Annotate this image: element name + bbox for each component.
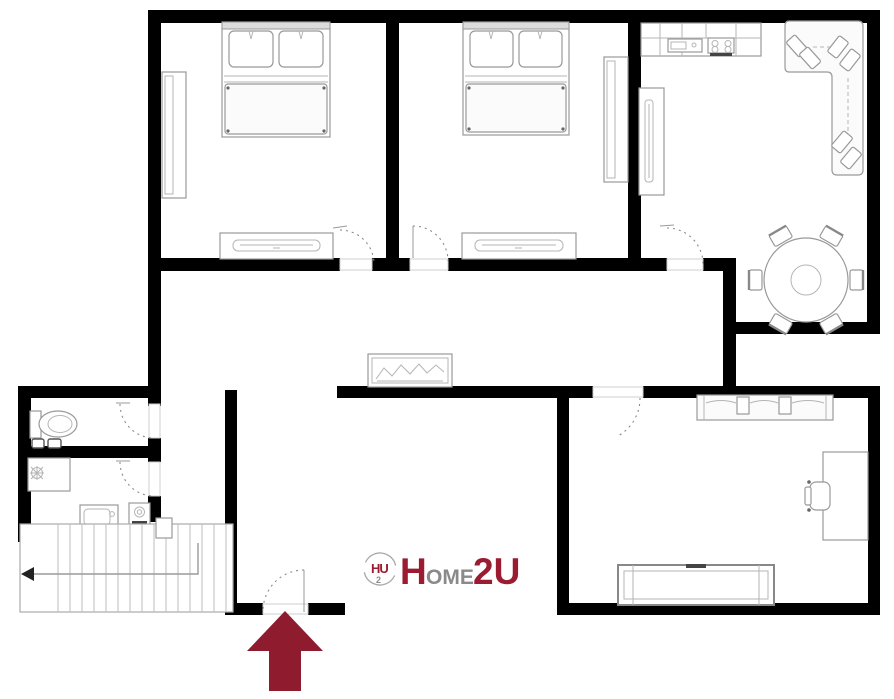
wall-bedroom-divider	[386, 23, 399, 271]
wall-dining-bottom	[723, 322, 880, 334]
logo-word-h: H	[400, 551, 427, 592]
logo-icon-sub: 2	[376, 575, 381, 585]
wall-right-upper	[867, 10, 880, 334]
double-bed	[463, 22, 569, 135]
wall-bath-top	[18, 386, 161, 398]
bath-mat	[32, 439, 44, 448]
dresser	[462, 233, 576, 259]
logo-word-ome: OME	[426, 566, 474, 589]
logo-icon-text: HU	[371, 561, 388, 576]
floor-plan: HU 2 H OME 2U	[0, 0, 894, 699]
logo-word-2u: 2U	[473, 551, 520, 592]
sideboard	[618, 564, 774, 605]
wardrobe	[162, 72, 186, 198]
kitchen-stove	[708, 38, 734, 56]
staircase	[20, 518, 233, 612]
console-table	[368, 354, 452, 387]
wall-hall-room-divider	[557, 386, 569, 615]
wall-left-upper	[148, 10, 161, 398]
wall-top	[148, 10, 880, 23]
wall-right-lower	[868, 386, 880, 615]
tv-cabinet	[639, 88, 664, 195]
kitchen-counter	[641, 23, 761, 56]
toilet	[30, 411, 77, 438]
double-bed	[222, 22, 330, 137]
stair-outline	[20, 524, 233, 612]
sofa	[697, 395, 833, 420]
dresser	[220, 233, 333, 259]
stair-landing-box	[156, 518, 172, 538]
shower	[28, 458, 70, 491]
hallway	[368, 354, 452, 387]
wall-dining-left	[723, 271, 736, 398]
bath-mat	[48, 439, 61, 448]
wardrobe	[604, 57, 628, 182]
kitchen-sink	[668, 39, 702, 52]
